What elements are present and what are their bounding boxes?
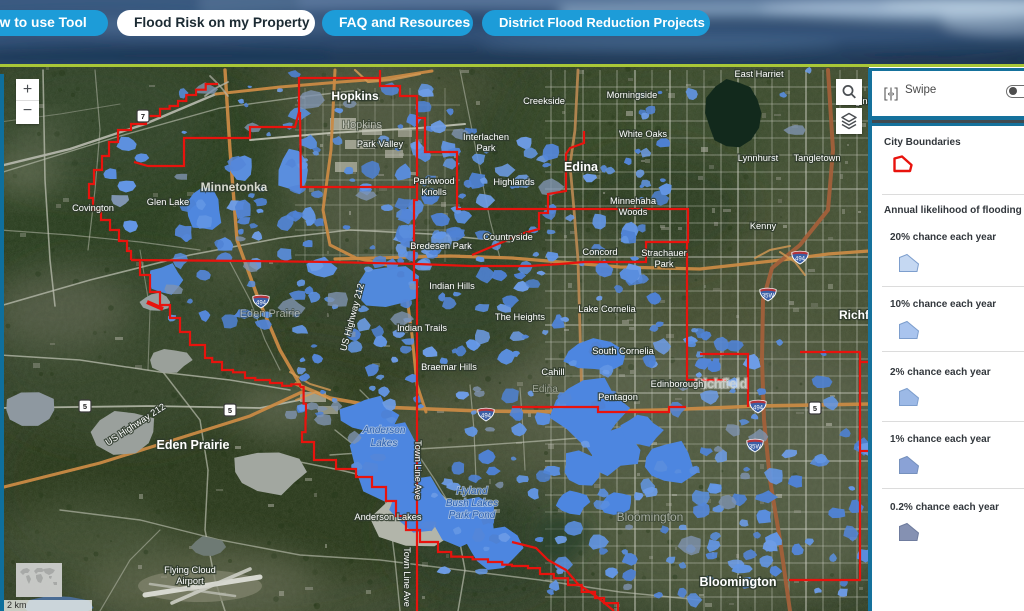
svg-text:5: 5: [813, 404, 817, 413]
svg-text:Bredesen Park: Bredesen Park: [410, 241, 472, 251]
svg-text:494: 494: [795, 257, 806, 263]
svg-text:Cahill: Cahill: [541, 367, 564, 377]
svg-text:Town Line Ave: Town Line Ave: [413, 440, 423, 500]
svg-text:Airport: Airport: [176, 576, 204, 586]
svg-text:Knolls: Knolls: [421, 187, 447, 197]
svg-text:494: 494: [481, 414, 492, 420]
svg-text:Park Pond: Park Pond: [449, 510, 496, 521]
svg-text:Flying Cloud: Flying Cloud: [164, 565, 216, 575]
svg-text:494: 494: [256, 301, 267, 307]
svg-text:Anderson: Anderson: [362, 425, 406, 436]
svg-text:Pentagon: Pentagon: [598, 392, 638, 402]
svg-text:Indian Trails: Indian Trails: [397, 323, 447, 333]
svg-text:Braemar Hills: Braemar Hills: [421, 362, 477, 372]
svg-text:Hopkins: Hopkins: [342, 119, 382, 131]
svg-text:Indian Hills: Indian Hills: [429, 281, 475, 291]
svg-text:Covington: Covington: [72, 203, 114, 213]
svg-text:Woods: Woods: [619, 207, 648, 217]
svg-text:Creekside: Creekside: [523, 96, 565, 106]
svg-text:Lynnhurst: Lynnhurst: [738, 153, 779, 163]
svg-text:Kenny: Kenny: [750, 221, 777, 231]
svg-text:Edina: Edina: [564, 160, 599, 174]
svg-text:Highlands: Highlands: [493, 177, 535, 187]
svg-text:Anderson Lakes: Anderson Lakes: [354, 512, 422, 522]
svg-text:Morningside: Morningside: [607, 90, 658, 100]
svg-text:The Heights: The Heights: [495, 312, 545, 322]
svg-text:Concord: Concord: [582, 247, 617, 257]
svg-text:35W: 35W: [749, 445, 762, 451]
svg-text:Park Valley: Park Valley: [357, 139, 404, 149]
svg-text:Bloomington: Bloomington: [617, 510, 684, 524]
svg-text:5: 5: [228, 406, 232, 415]
svg-text:7: 7: [141, 112, 145, 121]
svg-text:Strachauer: Strachauer: [641, 248, 686, 258]
svg-text:5: 5: [83, 402, 87, 411]
svg-text:White Oaks: White Oaks: [619, 129, 667, 139]
svg-text:Eden Prairie: Eden Prairie: [240, 308, 301, 320]
svg-text:Countryside: Countryside: [483, 232, 533, 242]
svg-text:East Harriet: East Harriet: [734, 69, 783, 79]
svg-text:Lakes: Lakes: [371, 438, 398, 449]
svg-text:Minnetonka: Minnetonka: [201, 180, 268, 194]
svg-text:Park: Park: [654, 259, 673, 269]
svg-text:Tangletown: Tangletown: [793, 153, 840, 163]
svg-text:Bloomington: Bloomington: [699, 575, 776, 589]
svg-text:Lake Cornelia: Lake Cornelia: [578, 304, 636, 314]
svg-text:Bush Lakes: Bush Lakes: [446, 498, 498, 509]
svg-text:Edina: Edina: [532, 384, 558, 395]
svg-text:Richf: Richf: [839, 308, 869, 322]
svg-text:Glen Lake: Glen Lake: [147, 197, 189, 207]
svg-text:494: 494: [753, 406, 764, 412]
svg-text:Hyland: Hyland: [456, 486, 488, 497]
svg-text:Hopkins: Hopkins: [331, 89, 379, 103]
svg-text:Eden Prairie: Eden Prairie: [157, 438, 230, 452]
svg-text:Town Line Ave: Town Line Ave: [402, 547, 412, 607]
svg-text:35W: 35W: [762, 294, 775, 300]
svg-text:Interlachen: Interlachen: [463, 132, 509, 142]
svg-text:Minnehaha: Minnehaha: [610, 196, 657, 206]
svg-text:South Cornelia: South Cornelia: [592, 346, 654, 356]
svg-text:Park: Park: [476, 143, 495, 153]
svg-text:Parkwood: Parkwood: [413, 176, 454, 186]
svg-text:Edinborough: Edinborough: [651, 379, 704, 389]
